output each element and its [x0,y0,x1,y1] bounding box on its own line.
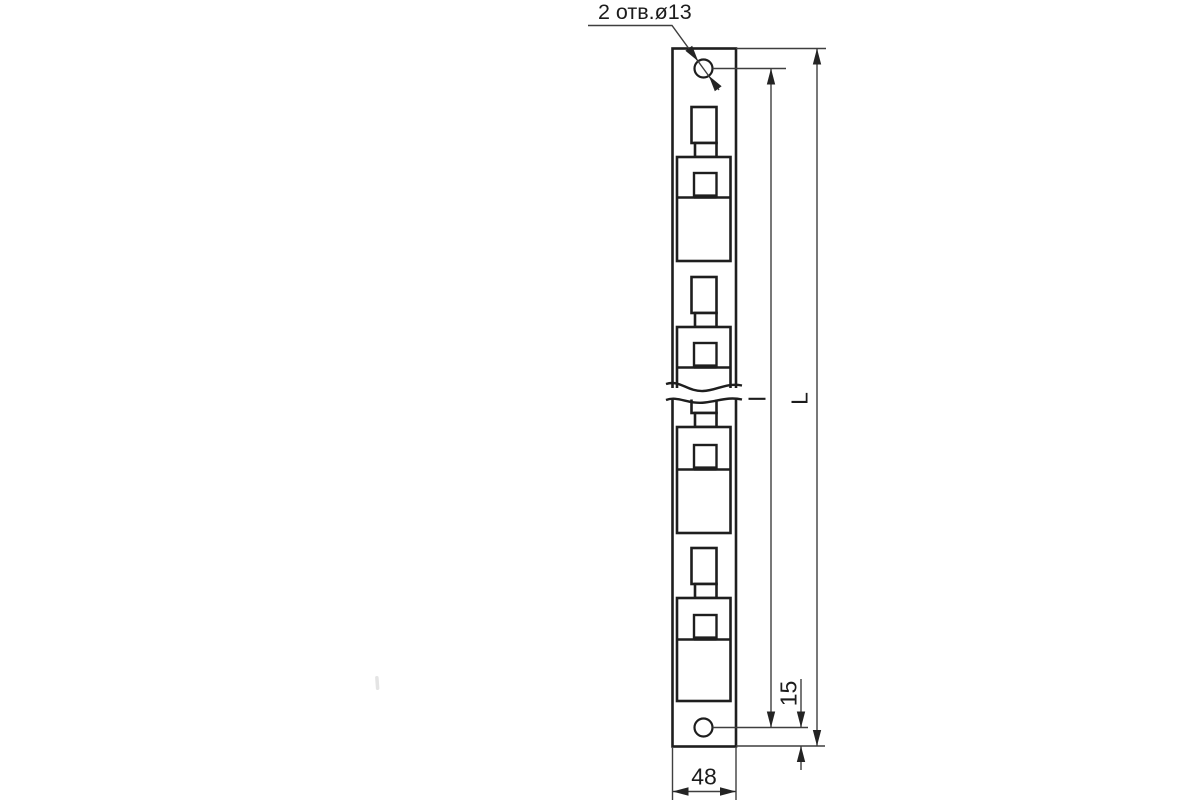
width-label: 48 [691,764,717,790]
arrowhead [767,69,775,85]
hook-neck [695,413,717,427]
hook-neck [695,584,717,598]
technical-drawing: L l 15 48 2 отв.ø13 [0,0,1200,800]
hole-spacing-label: l [745,396,771,401]
arrowhead [797,712,805,728]
hole-offset-label: 15 [776,681,802,707]
hook-neck [695,143,717,157]
mounting-hole-bottom [695,719,713,737]
hook-pin [692,548,717,584]
dim-hole-offset: 15 [776,679,806,770]
hook-slot [694,445,717,468]
overall-length-label: L [787,392,813,405]
holes-note-label: 2 отв.ø13 [598,0,692,24]
scan-artifact-mark [375,676,379,690]
drawing-canvas: L l 15 48 2 отв.ø13 [0,0,1200,800]
hook-base-plate [677,598,731,701]
arrowhead [767,712,775,728]
hook-pin [692,107,717,143]
arrowhead [813,730,821,746]
hook-slot [694,343,717,366]
arrowhead [720,787,736,795]
arrowhead [797,746,805,762]
dim-width: 48 [673,748,737,800]
hook-slot [694,173,717,196]
hook-pin [692,277,717,313]
arrowhead [673,787,689,795]
hook-slot [694,615,717,638]
hook-neck [695,313,717,327]
arrowhead [813,49,821,65]
hook-base-plate [677,427,731,533]
